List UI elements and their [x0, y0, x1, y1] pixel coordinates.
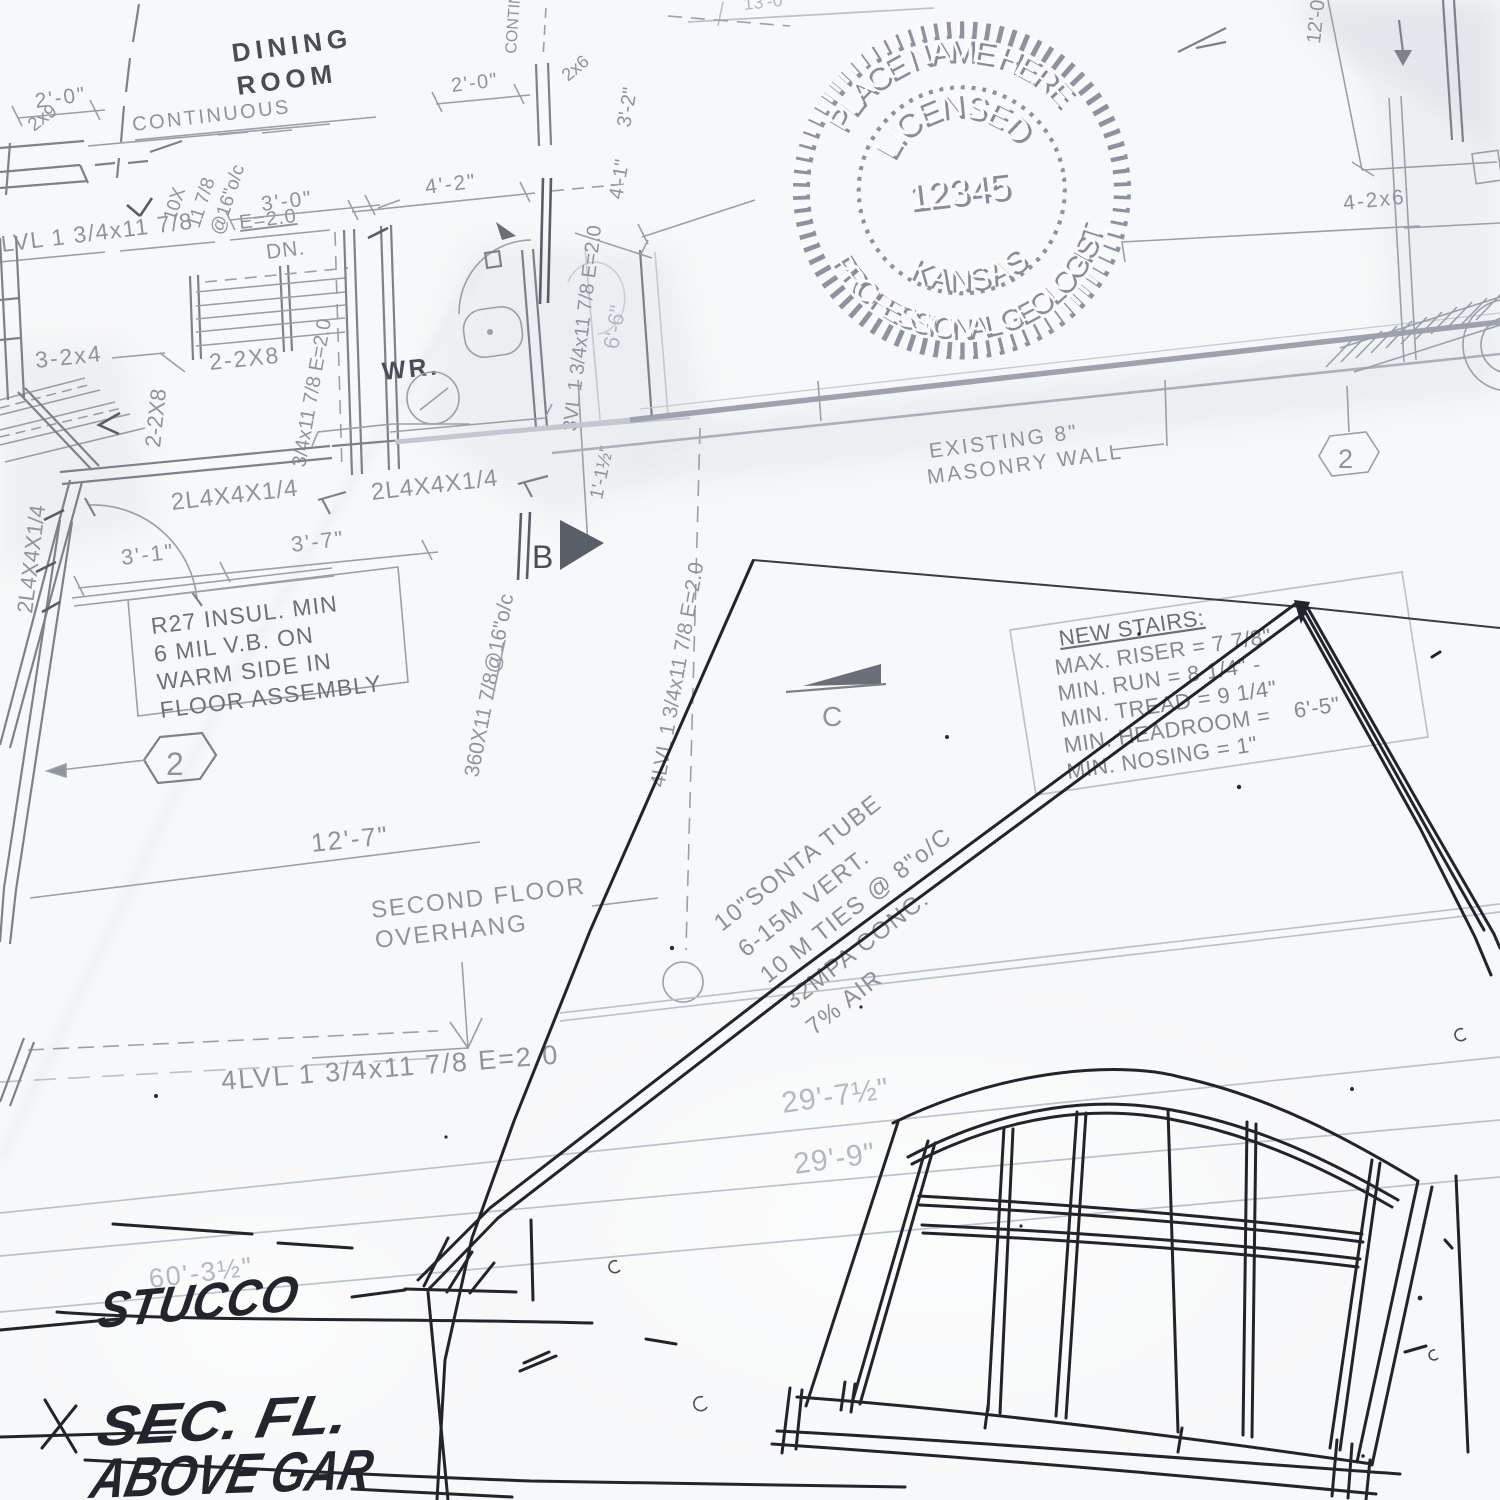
- svg-text:B: B: [532, 539, 553, 575]
- svg-text:C: C: [822, 701, 842, 732]
- svg-text:WR.: WR.: [381, 352, 441, 386]
- svg-text:2: 2: [1338, 444, 1353, 474]
- svg-text:DN.: DN.: [265, 236, 307, 264]
- svg-text:2: 2: [166, 746, 184, 782]
- svg-text:ABOVE: ABOVE: [84, 1442, 269, 1500]
